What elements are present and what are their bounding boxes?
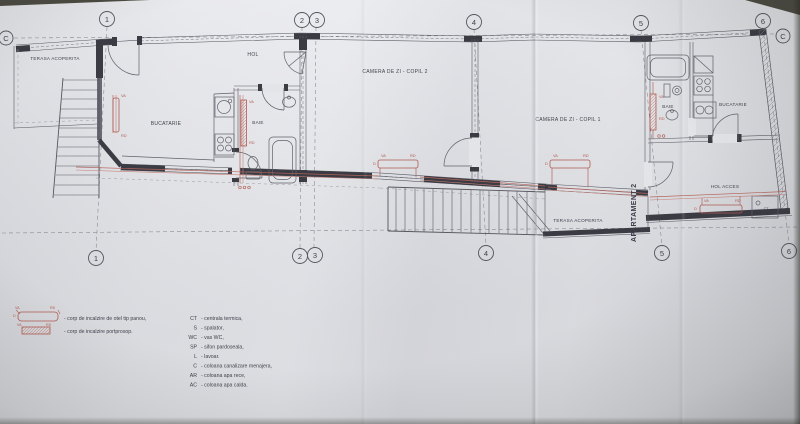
grid-bubble-top-4: 4 xyxy=(467,15,482,30)
legend-desc: - coloana canalizare menajera, xyxy=(201,364,272,370)
legend-radiator-panel-text: - corp de incalzire de otel tip panou, xyxy=(64,316,146,322)
legend-abbr: S xyxy=(194,326,198,332)
pipe-label-va: VA xyxy=(381,153,386,158)
grid-bubble-top-6: 6 xyxy=(756,14,771,29)
room-label-copil2: CAMERA DE ZI - COPIL 2 xyxy=(362,69,427,75)
grid-bubble-label: 6 xyxy=(761,17,765,26)
grid-bubble-top-5: 5 xyxy=(634,16,649,31)
legend-desc: - coloana apa calda. xyxy=(201,383,248,389)
ct-label: CT xyxy=(764,207,770,211)
grid-bubble-top-1: 1 xyxy=(100,12,115,27)
lavoar-right xyxy=(666,110,678,120)
room-label-bucatarie-right: BUCATARIE xyxy=(719,102,747,107)
lavoar-mid xyxy=(283,97,296,107)
grid-bubble-label: 5 xyxy=(660,249,664,258)
legend-d-label: D xyxy=(13,314,16,318)
grid-bubble-label: 3 xyxy=(313,251,317,260)
grid-bubble-label: 2 xyxy=(298,252,302,261)
pipe-label-rd: RD xyxy=(121,133,127,138)
room-label-baie-mid: BAIE xyxy=(252,120,263,125)
legend-abbr: L xyxy=(194,354,197,360)
pipe-label-va: VA xyxy=(249,99,254,104)
grid-bubble-bottom-4: 4 xyxy=(479,246,494,261)
photo-edge-shadow xyxy=(793,0,800,424)
photo-of-floor-plan: 1 2 3 4 5 6 C C 1 2 3 4 5 6 xyxy=(0,0,800,424)
legend-desc: - vas WC, xyxy=(201,335,224,341)
radiator-copil1 xyxy=(550,160,590,168)
grid-bubble-label: C xyxy=(3,34,9,43)
door-arc-copil2 xyxy=(444,138,472,166)
room-labels: TERASA ACOPERITA BUCATARIE HOL BAIE CAME… xyxy=(30,52,747,242)
legend-desc: - spalator, xyxy=(201,326,224,332)
winder-steps-hol xyxy=(284,52,306,74)
towel-radiator-bath-mid xyxy=(241,100,247,146)
grid-bubble-axis-c-right: C xyxy=(776,29,790,43)
kitchen-left-fixtures xyxy=(122,93,234,162)
photo-edge-shadow xyxy=(0,417,800,424)
pipe-label-d: D xyxy=(373,161,376,166)
legend-desc: - sifon pardoseala, xyxy=(201,345,244,351)
door-arc-entry-kitchen xyxy=(108,44,139,75)
grid-bubble-bottom-5: 5 xyxy=(655,246,670,261)
room-label-terasa-top: TERASA ACOPERITA xyxy=(30,56,80,61)
grid-bubble-top-2: 2 xyxy=(295,13,310,28)
pipe-label-rd: RD xyxy=(249,140,255,145)
pipe-label-d: D xyxy=(694,206,697,211)
room-label-baie-right: BAIE xyxy=(662,104,673,109)
legend-abbreviations: CT - centrala termica, S - spalator, WC … xyxy=(188,316,272,389)
legend-abbr: SP xyxy=(190,345,197,351)
grid-bubble-axis-c-left: C xyxy=(0,31,13,45)
legend-va-label: VA xyxy=(15,306,20,310)
pipe-label-va: VA xyxy=(553,153,558,158)
grid-bubble-label: 5 xyxy=(639,19,643,28)
legend-desc: - lavoar. xyxy=(201,354,219,360)
grid-bubble-top-3: 3 xyxy=(310,13,325,28)
kitchen-right-fixtures xyxy=(694,56,716,136)
wc-right-tank xyxy=(664,84,670,97)
room-label-copil1: CAMERA DE ZI - COPIL 1 xyxy=(535,117,600,123)
legend-desc: - coloana apa rece, xyxy=(201,373,245,379)
stairs-left xyxy=(53,78,99,198)
pipe-label-rd: RD xyxy=(735,198,741,203)
grid-bubble-label: 4 xyxy=(484,249,488,258)
grid-bubble-label: 4 xyxy=(472,18,476,27)
legend: VA RD D - corp de incalzire de otel tip … xyxy=(13,306,272,389)
grid-bubble-label: 3 xyxy=(315,16,319,25)
legend-abbr: AR xyxy=(190,373,197,379)
pipe-label-d: D xyxy=(545,161,548,166)
pipe-label-rd: RD xyxy=(659,116,665,121)
towel-radiator-bath-right xyxy=(650,94,656,130)
legend-rd-label: RD xyxy=(46,323,52,327)
legend-radiator-panel-symbol: VA RD D xyxy=(13,306,60,321)
exterior-walls xyxy=(14,29,792,238)
grid-bubble-label: C xyxy=(780,32,786,41)
stairs-main xyxy=(388,187,550,235)
grid-bubble-label: 1 xyxy=(105,15,109,24)
legend-abbr: C xyxy=(193,364,197,370)
radiator-copil2 xyxy=(378,160,418,168)
legend-radiator-towel-symbol: VA RD xyxy=(17,323,52,334)
legend-rd-label: RD xyxy=(50,306,56,310)
grid-bubble-bottom-1: 1 xyxy=(89,251,104,266)
room-label-hol-acces: HOL ACCES xyxy=(711,184,739,189)
pipe-label-va: VA xyxy=(121,93,126,98)
pipe-label-rd: RD xyxy=(583,153,589,158)
grid-bubble-bottom-3: 3 xyxy=(308,248,323,263)
grid-bubble-label: 2 xyxy=(300,16,304,25)
room-label-hol: HOL xyxy=(247,52,258,58)
grid-bubble-label: 6 xyxy=(787,247,791,256)
legend-radiator-towel-text: - corp de incalzire portprosop. xyxy=(64,329,133,335)
doors xyxy=(108,44,738,187)
legend-desc: - centrala termica, xyxy=(201,316,243,322)
pipe-label-va: VA xyxy=(704,198,709,203)
legend-abbr: CT xyxy=(190,316,198,322)
paper-fold-crease xyxy=(531,0,539,424)
legend-va-label: VA xyxy=(17,323,22,327)
pipe-label-va: VA xyxy=(659,94,664,99)
room-label-bucatarie-left: BUCATARIE xyxy=(151,121,182,127)
grid-bubble-label: 1 xyxy=(94,254,98,263)
grid-bubble-bottom-2: 2 xyxy=(293,249,308,264)
pipe-label-rd: RD xyxy=(410,153,416,158)
room-label-apartament-2: APARTAMENT 2 xyxy=(631,183,638,242)
legend-abbr: AC xyxy=(190,383,197,389)
paper-crease-faint xyxy=(678,0,686,424)
stove-left xyxy=(215,134,234,155)
paper-crease-faint xyxy=(360,0,368,424)
legend-abbr: WC xyxy=(188,335,197,341)
stove-right xyxy=(694,76,713,95)
room-label-terasa-bottom: TERASA ACOPERITA xyxy=(553,218,603,223)
